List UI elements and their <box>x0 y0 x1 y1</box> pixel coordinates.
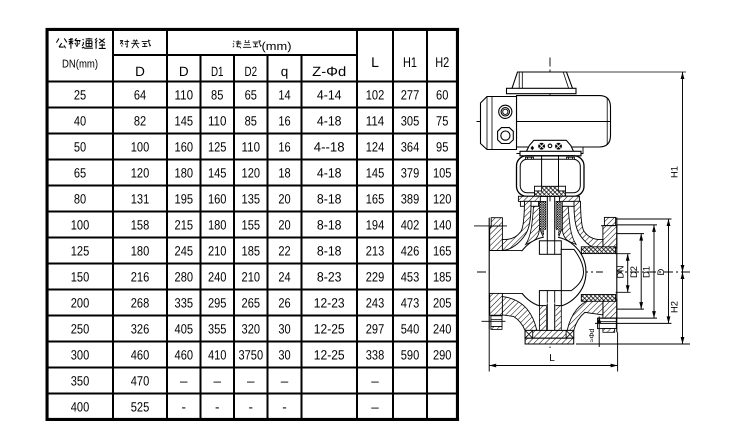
svg-text:4--18: 4--18 <box>314 139 345 154</box>
svg-text:–: – <box>371 399 379 414</box>
svg-text:131: 131 <box>131 191 150 206</box>
svg-text:D1: D1 <box>211 64 224 79</box>
svg-text:Z-Φd: Z-Φd <box>312 64 346 79</box>
svg-text:85: 85 <box>211 87 223 102</box>
svg-text:102: 102 <box>366 87 385 102</box>
svg-text:60: 60 <box>436 87 448 102</box>
svg-text:125: 125 <box>71 243 90 258</box>
svg-text:350: 350 <box>71 373 90 388</box>
svg-text:30: 30 <box>278 347 290 362</box>
svg-text:215: 215 <box>175 217 194 232</box>
svg-text:160: 160 <box>175 139 194 154</box>
svg-text:100: 100 <box>71 217 90 232</box>
svg-text:389: 389 <box>401 191 420 206</box>
svg-text:305: 305 <box>401 113 420 128</box>
svg-text:124: 124 <box>366 139 385 154</box>
svg-text:145: 145 <box>366 165 385 180</box>
svg-text:280: 280 <box>175 269 194 284</box>
svg-text:30: 30 <box>278 321 290 336</box>
svg-text:453: 453 <box>401 269 420 284</box>
svg-text:125: 125 <box>208 139 227 154</box>
svg-text:16: 16 <box>278 139 290 154</box>
svg-text:40: 40 <box>74 113 86 128</box>
svg-text:245: 245 <box>175 243 194 258</box>
svg-text:–: – <box>213 373 221 388</box>
svg-text:D1: D1 <box>642 266 653 278</box>
svg-text:-: - <box>182 399 187 414</box>
svg-text:D: D <box>656 268 667 275</box>
svg-text:402: 402 <box>401 217 420 232</box>
svg-text:540: 540 <box>401 321 420 336</box>
svg-text:155: 155 <box>242 217 261 232</box>
svg-text:185: 185 <box>433 269 452 284</box>
svg-text:82: 82 <box>134 113 146 128</box>
svg-text:590: 590 <box>401 347 420 362</box>
svg-text:80: 80 <box>74 191 86 206</box>
svg-text:22: 22 <box>278 243 290 258</box>
svg-text:185: 185 <box>242 243 261 258</box>
svg-text:150: 150 <box>71 269 90 284</box>
svg-text:145: 145 <box>175 113 194 128</box>
svg-text:50: 50 <box>74 139 86 154</box>
svg-text:460: 460 <box>175 347 194 362</box>
svg-text:165: 165 <box>366 191 385 206</box>
svg-text:20: 20 <box>278 217 290 232</box>
svg-text:110: 110 <box>242 139 261 154</box>
svg-text:65: 65 <box>245 87 257 102</box>
svg-text:114: 114 <box>366 113 385 128</box>
svg-text:140: 140 <box>433 217 452 232</box>
svg-text:D: D <box>179 64 189 79</box>
svg-text:135: 135 <box>242 191 261 206</box>
svg-text:-: - <box>249 399 254 414</box>
svg-text:120: 120 <box>433 191 452 206</box>
svg-text:20: 20 <box>278 191 290 206</box>
svg-text:210: 210 <box>242 269 261 284</box>
svg-text:400: 400 <box>71 399 90 414</box>
svg-text:110: 110 <box>175 87 194 102</box>
svg-text:100: 100 <box>131 139 150 154</box>
svg-text:460: 460 <box>131 347 150 362</box>
svg-text:320: 320 <box>242 321 261 336</box>
svg-text:160: 160 <box>208 191 227 206</box>
svg-text:(mm): (mm) <box>262 41 292 53</box>
svg-text:D: D <box>135 64 145 79</box>
svg-text:L: L <box>549 353 555 364</box>
svg-text:158: 158 <box>131 217 150 232</box>
svg-text:326: 326 <box>131 321 150 336</box>
svg-text:H2: H2 <box>670 301 681 313</box>
svg-text:240: 240 <box>208 269 227 284</box>
svg-text:65: 65 <box>74 165 86 180</box>
svg-text:95: 95 <box>436 139 448 154</box>
svg-text:205: 205 <box>433 295 452 310</box>
svg-text:-: - <box>215 399 220 414</box>
svg-text:L: L <box>371 54 379 70</box>
svg-text:268: 268 <box>131 295 150 310</box>
svg-text:210: 210 <box>208 243 227 258</box>
svg-text:195: 195 <box>175 191 194 206</box>
svg-text:-: - <box>282 399 287 414</box>
svg-text:110: 110 <box>208 113 227 128</box>
svg-text:4-18: 4-18 <box>317 113 342 128</box>
svg-text:200: 200 <box>71 295 90 310</box>
svg-text:290: 290 <box>433 347 452 362</box>
svg-text:8-23: 8-23 <box>317 269 342 284</box>
svg-text:180: 180 <box>208 217 227 232</box>
svg-text:194: 194 <box>366 217 385 232</box>
svg-text:D2: D2 <box>629 266 640 278</box>
svg-text:25: 25 <box>74 87 86 102</box>
svg-text:229: 229 <box>366 269 385 284</box>
svg-text:379: 379 <box>401 165 420 180</box>
svg-text:243: 243 <box>366 295 385 310</box>
svg-text:180: 180 <box>131 243 150 258</box>
svg-text:240: 240 <box>433 321 452 336</box>
svg-text:295: 295 <box>208 295 227 310</box>
svg-text:473: 473 <box>401 295 420 310</box>
svg-text:265: 265 <box>242 295 261 310</box>
svg-text:120: 120 <box>242 165 261 180</box>
svg-text:213: 213 <box>366 243 385 258</box>
svg-text:277: 277 <box>401 87 420 102</box>
svg-text:75: 75 <box>436 113 448 128</box>
svg-text:4-18: 4-18 <box>317 165 342 180</box>
svg-text:64: 64 <box>134 87 147 102</box>
svg-text:14: 14 <box>278 87 291 102</box>
svg-text:105: 105 <box>433 165 452 180</box>
svg-text:8-18: 8-18 <box>317 217 342 232</box>
svg-text:165: 165 <box>433 243 452 258</box>
svg-text:426: 426 <box>401 243 420 258</box>
svg-text:D2: D2 <box>245 64 258 79</box>
svg-text:q: q <box>281 64 289 79</box>
svg-text:405: 405 <box>175 321 194 336</box>
svg-text:8-18: 8-18 <box>317 191 342 206</box>
svg-text:300: 300 <box>71 347 90 362</box>
svg-text:–: – <box>281 373 289 388</box>
svg-text:DN: DN <box>616 265 627 278</box>
svg-text:18: 18 <box>278 165 290 180</box>
svg-text:24: 24 <box>278 269 291 284</box>
svg-text:–: – <box>371 373 379 388</box>
svg-text:180: 180 <box>175 165 194 180</box>
svg-text:335: 335 <box>175 295 194 310</box>
svg-text:12-25: 12-25 <box>314 347 345 362</box>
svg-text:525: 525 <box>131 399 150 414</box>
svg-text:470: 470 <box>131 373 150 388</box>
svg-text:145: 145 <box>208 165 227 180</box>
svg-text:16: 16 <box>278 113 290 128</box>
svg-text:250: 250 <box>71 321 90 336</box>
svg-text:–: – <box>180 373 188 388</box>
svg-text:4-14: 4-14 <box>317 87 342 102</box>
svg-text:≈Φd: ≈Φd <box>588 328 596 342</box>
svg-text:120: 120 <box>131 165 150 180</box>
svg-text:216: 216 <box>131 269 150 284</box>
svg-text:364: 364 <box>401 139 420 154</box>
svg-text:3750: 3750 <box>239 347 264 362</box>
svg-text:355: 355 <box>208 321 227 336</box>
svg-text:8-18: 8-18 <box>317 243 342 258</box>
svg-text:H2: H2 <box>435 54 449 70</box>
svg-text:297: 297 <box>366 321 385 336</box>
svg-text:410: 410 <box>208 347 227 362</box>
svg-text:H1: H1 <box>670 166 681 178</box>
svg-text:H1: H1 <box>403 54 417 70</box>
svg-text:85: 85 <box>245 113 257 128</box>
svg-text:12-23: 12-23 <box>314 295 345 310</box>
svg-text:26: 26 <box>278 295 290 310</box>
svg-text:338: 338 <box>366 347 385 362</box>
svg-text:DN(mm): DN(mm) <box>62 59 98 71</box>
svg-text:12-25: 12-25 <box>314 321 345 336</box>
svg-text:–: – <box>247 373 255 388</box>
